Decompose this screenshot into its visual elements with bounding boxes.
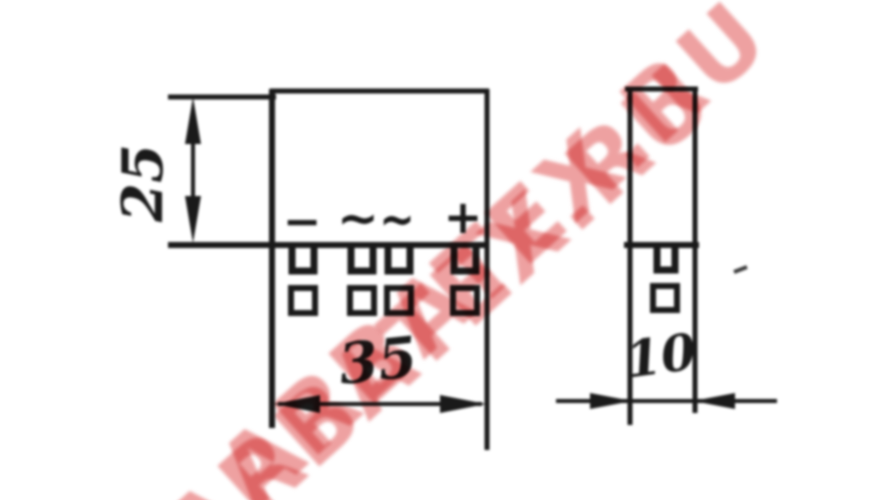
height-arrow-up (185, 97, 201, 144)
drawing-canvas: 25 35 10 − ~ ~ + ARBATEX.RU ARBATEX.RU (0, 0, 890, 500)
depth-arrow-left (693, 393, 735, 409)
terminal-mark-minus: − (280, 203, 324, 239)
depth-dimension-label: 10 (615, 321, 706, 390)
depth-arrow-right (590, 393, 632, 409)
terminal-mark-ac2: ~ (378, 201, 415, 237)
height-arrow-down (185, 196, 201, 243)
width-arrow-right (440, 395, 486, 413)
terminal-mark-ac1: ~ (336, 200, 380, 236)
terminal-pin (291, 246, 315, 313)
height-dimension-label: 25 (113, 141, 173, 225)
terminal-pin (653, 246, 677, 310)
scan-artifact-dash (734, 267, 747, 272)
